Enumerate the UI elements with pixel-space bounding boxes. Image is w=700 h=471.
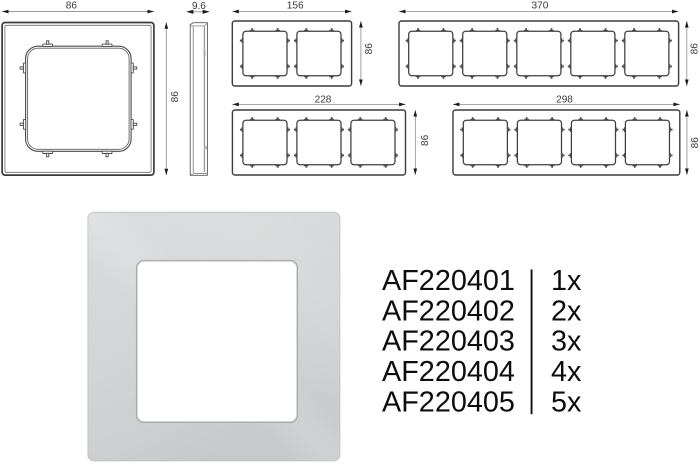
svg-text:1x: 1x [551,265,582,297]
svg-text:AF220404: AF220404 [382,356,515,388]
svg-text:86: 86 [66,1,78,12]
svg-text:86: 86 [364,43,375,55]
svg-text:228: 228 [315,95,332,106]
svg-text:298: 298 [556,95,573,106]
svg-text:2x: 2x [551,295,582,327]
svg-text:86: 86 [690,137,700,149]
svg-text:86: 86 [420,134,431,146]
svg-text:3x: 3x [551,326,582,358]
svg-text:86: 86 [689,43,700,55]
svg-text:370: 370 [531,1,548,12]
svg-text:4x: 4x [551,356,582,388]
svg-text:86: 86 [170,91,181,103]
svg-text:AF220402: AF220402 [382,295,515,327]
svg-text:AF220401: AF220401 [382,265,515,297]
svg-text:AF220405: AF220405 [382,387,515,419]
svg-text:156: 156 [287,1,304,12]
svg-text:AF220403: AF220403 [382,326,515,358]
svg-text:5x: 5x [551,387,582,419]
svg-text:9.6: 9.6 [192,1,206,12]
